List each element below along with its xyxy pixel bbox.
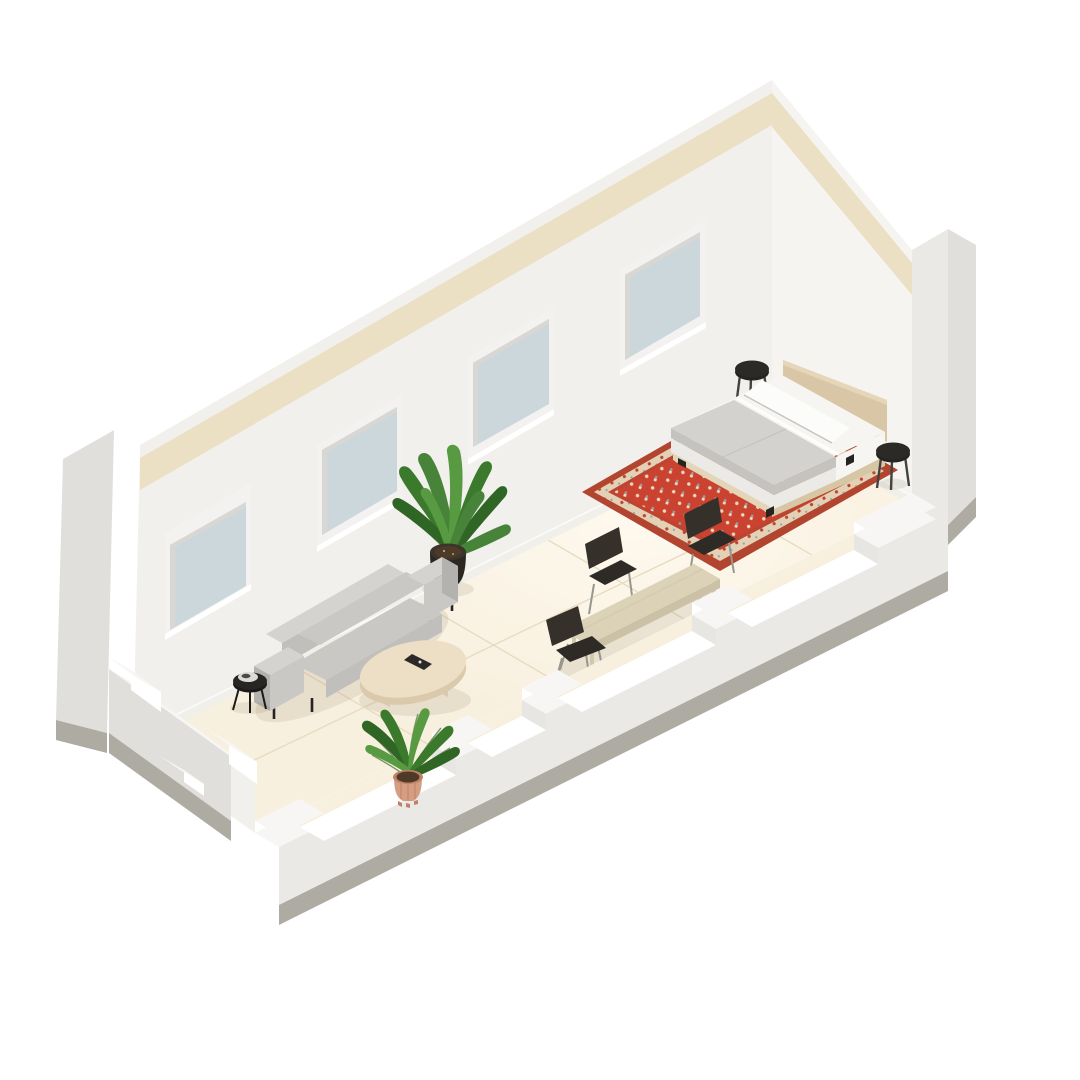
stool-leg: [891, 460, 892, 490]
monstera-pot-soil: [397, 772, 420, 783]
window-glass-left-shadow: [473, 360, 478, 447]
right-wall-front-cut-face: [912, 229, 948, 531]
stool-seat: [735, 361, 769, 378]
isometric-room-illustration: [0, 0, 1080, 1080]
soil-fleck: [452, 553, 454, 555]
room-render-canvas: [0, 0, 1080, 1080]
plant-pot-soil: [435, 546, 462, 558]
window-glass-left-shadow: [170, 542, 175, 630]
back-wall-left-exterior: [56, 430, 114, 733]
stool-shadow: [879, 479, 907, 490]
window-glass-left-shadow: [322, 447, 327, 535]
right-wall-outer-edge: [948, 229, 976, 525]
stool-seat: [876, 443, 910, 460]
remote-button: [419, 661, 422, 664]
side-table-tray-item: [242, 674, 251, 678]
window-glass-left-shadow: [625, 272, 630, 360]
soil-fleck: [443, 550, 445, 552]
